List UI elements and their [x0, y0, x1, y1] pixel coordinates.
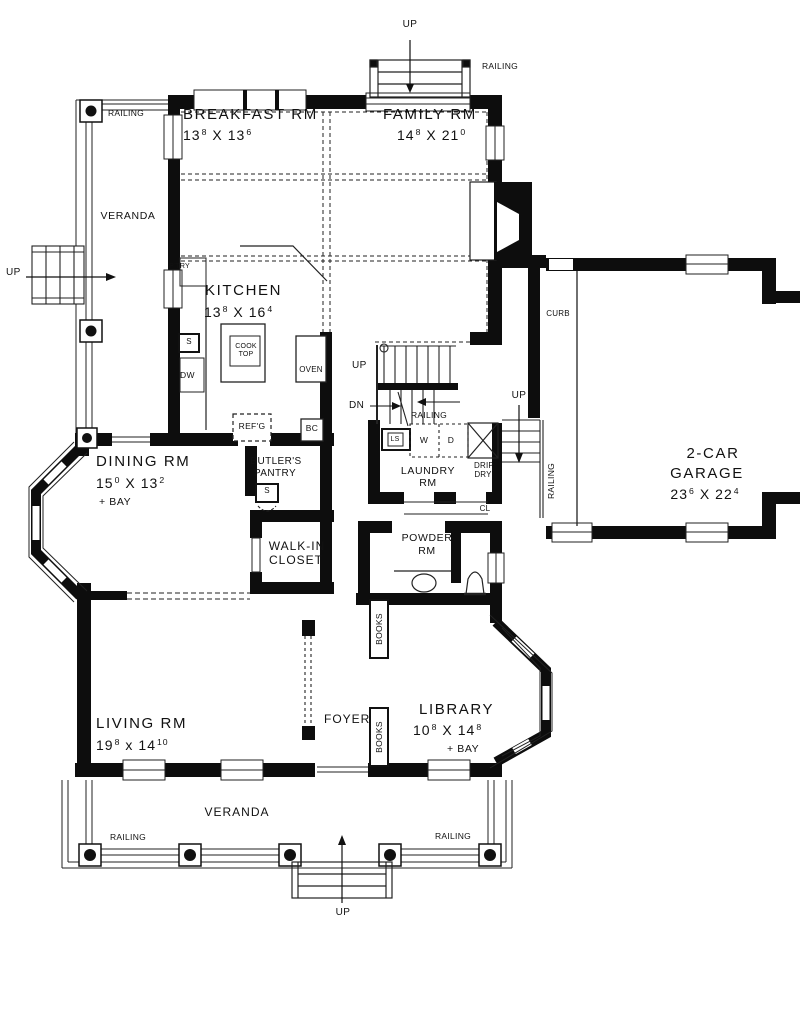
curb-label: CURB [546, 310, 569, 318]
dining-room-dims: 150X132 [96, 476, 165, 490]
drip-dry-label-line1: DRIP [474, 462, 494, 470]
railing-label-front-left: RAILING [110, 833, 146, 842]
breakfast-room-dims: 138X136 [183, 128, 252, 142]
cooktop-label-line1: COOK [235, 343, 256, 350]
garage-side-stairs [502, 420, 543, 518]
up-label-main-stairs: UP [352, 361, 367, 371]
kitchen-dims: 138X164 [204, 305, 273, 319]
foyer-label: FOYER [324, 713, 370, 725]
kitchen-sink-label: S [186, 338, 192, 346]
left-up-arrow [26, 273, 116, 281]
laundry-sink-label: LS [391, 436, 400, 443]
railing-label-left-veranda: RAILING [108, 109, 144, 118]
dining-room-label: DINING RM [96, 454, 190, 469]
powder-sink [412, 574, 436, 592]
garage-side-up-arrow [515, 405, 523, 463]
railing-label-garage-stairs: RAILING [547, 463, 556, 499]
living-room-label: LIVING RM [96, 716, 187, 731]
books-label-2: BOOKS [375, 721, 384, 753]
books-label-1: BOOKS [375, 613, 384, 645]
library-bay-window [490, 615, 552, 768]
family-room-label: FAMILY RM [383, 107, 477, 122]
veranda-label-front: VERANDA [204, 806, 269, 818]
up-label-garage-stairs: UP [512, 391, 527, 401]
kitchen-label: KITCHEN [205, 283, 282, 298]
railing-label-front-right: RAILING [435, 832, 471, 841]
washer-dryer [410, 424, 468, 457]
hall-closet-label: CL [480, 505, 491, 513]
foyer-cased-opening [305, 636, 311, 726]
left-veranda [76, 100, 168, 433]
garage-dims: 236X224 [670, 487, 739, 501]
oven-cabinet [296, 336, 326, 382]
staircase-railing-bar [378, 383, 458, 390]
left-veranda-posts [77, 100, 102, 448]
walk-in-closet-label-line2: CLOSET [269, 554, 323, 566]
oven-label: OVEN [299, 366, 322, 374]
fireplace [470, 182, 532, 260]
butlers-pantry-label-line2: PANTRY [254, 469, 296, 479]
laundry-room-label-line1: LAUNDRY [401, 466, 455, 477]
front-up-arrow [338, 835, 346, 903]
railing-label-main-stairs: RAILING [411, 411, 447, 420]
dryer-label: D [448, 436, 454, 445]
walls [75, 95, 800, 777]
railing-label-top: RAILING [482, 62, 518, 71]
dining-bay-window [29, 442, 87, 602]
up-label-top-stoop: UP [403, 20, 418, 30]
washer-label: W [420, 436, 428, 445]
pantry-label: P'TRY [169, 263, 190, 270]
toilet [466, 572, 484, 594]
dishwasher-label: DW [180, 371, 195, 380]
powder-room-label-line1: POWDER [402, 533, 453, 544]
library-label: LIBRARY [419, 702, 494, 717]
living-room-dims: 198x1410 [96, 738, 169, 752]
top-up-arrow [406, 40, 414, 93]
butlers-pantry-label-line1: BUTLER'S [250, 457, 301, 467]
walk-in-closet-label-line1: WALK-IN [269, 540, 326, 552]
dn-label-main-stairs: DN [349, 401, 364, 411]
cooktop-label-line2: TOP [239, 351, 254, 358]
library-dims: 108X148 [413, 723, 482, 737]
garage-label-line2: GARAGE [670, 466, 744, 481]
refrigerator-label: REF'G [239, 422, 266, 431]
family-room-dims: 148X210 [397, 128, 466, 142]
bar-cabinet-label: BC [306, 424, 318, 433]
breakfast-room-label: BREAKFAST RM [183, 107, 318, 122]
garage-label-line1: 2-CAR [686, 446, 739, 461]
veranda-label-left: VERANDA [101, 211, 156, 222]
dining-living-divider [127, 593, 250, 599]
top-stoop-stairs [370, 60, 470, 97]
left-veranda-stairs [32, 246, 84, 304]
closet-door [252, 538, 260, 572]
powder-room-label-line2: RM [418, 546, 436, 557]
up-label-left-stairs: UP [6, 268, 21, 278]
staircase-arrows [370, 398, 460, 410]
butlers-sink-label: S [264, 487, 270, 495]
floor-plan: UP RAILING BREAKFAST RM 138X136 FAMILY R… [0, 0, 800, 1036]
library-note: + BAY [447, 744, 479, 755]
floor-plan-drawing [0, 0, 800, 1036]
drip-dry-label-line2: DRY [474, 471, 491, 479]
powder-room-fixtures [394, 571, 486, 594]
dining-room-note: + BAY [99, 497, 131, 508]
laundry-room-label-line2: RM [419, 478, 437, 489]
up-label-front-steps: UP [336, 908, 351, 918]
